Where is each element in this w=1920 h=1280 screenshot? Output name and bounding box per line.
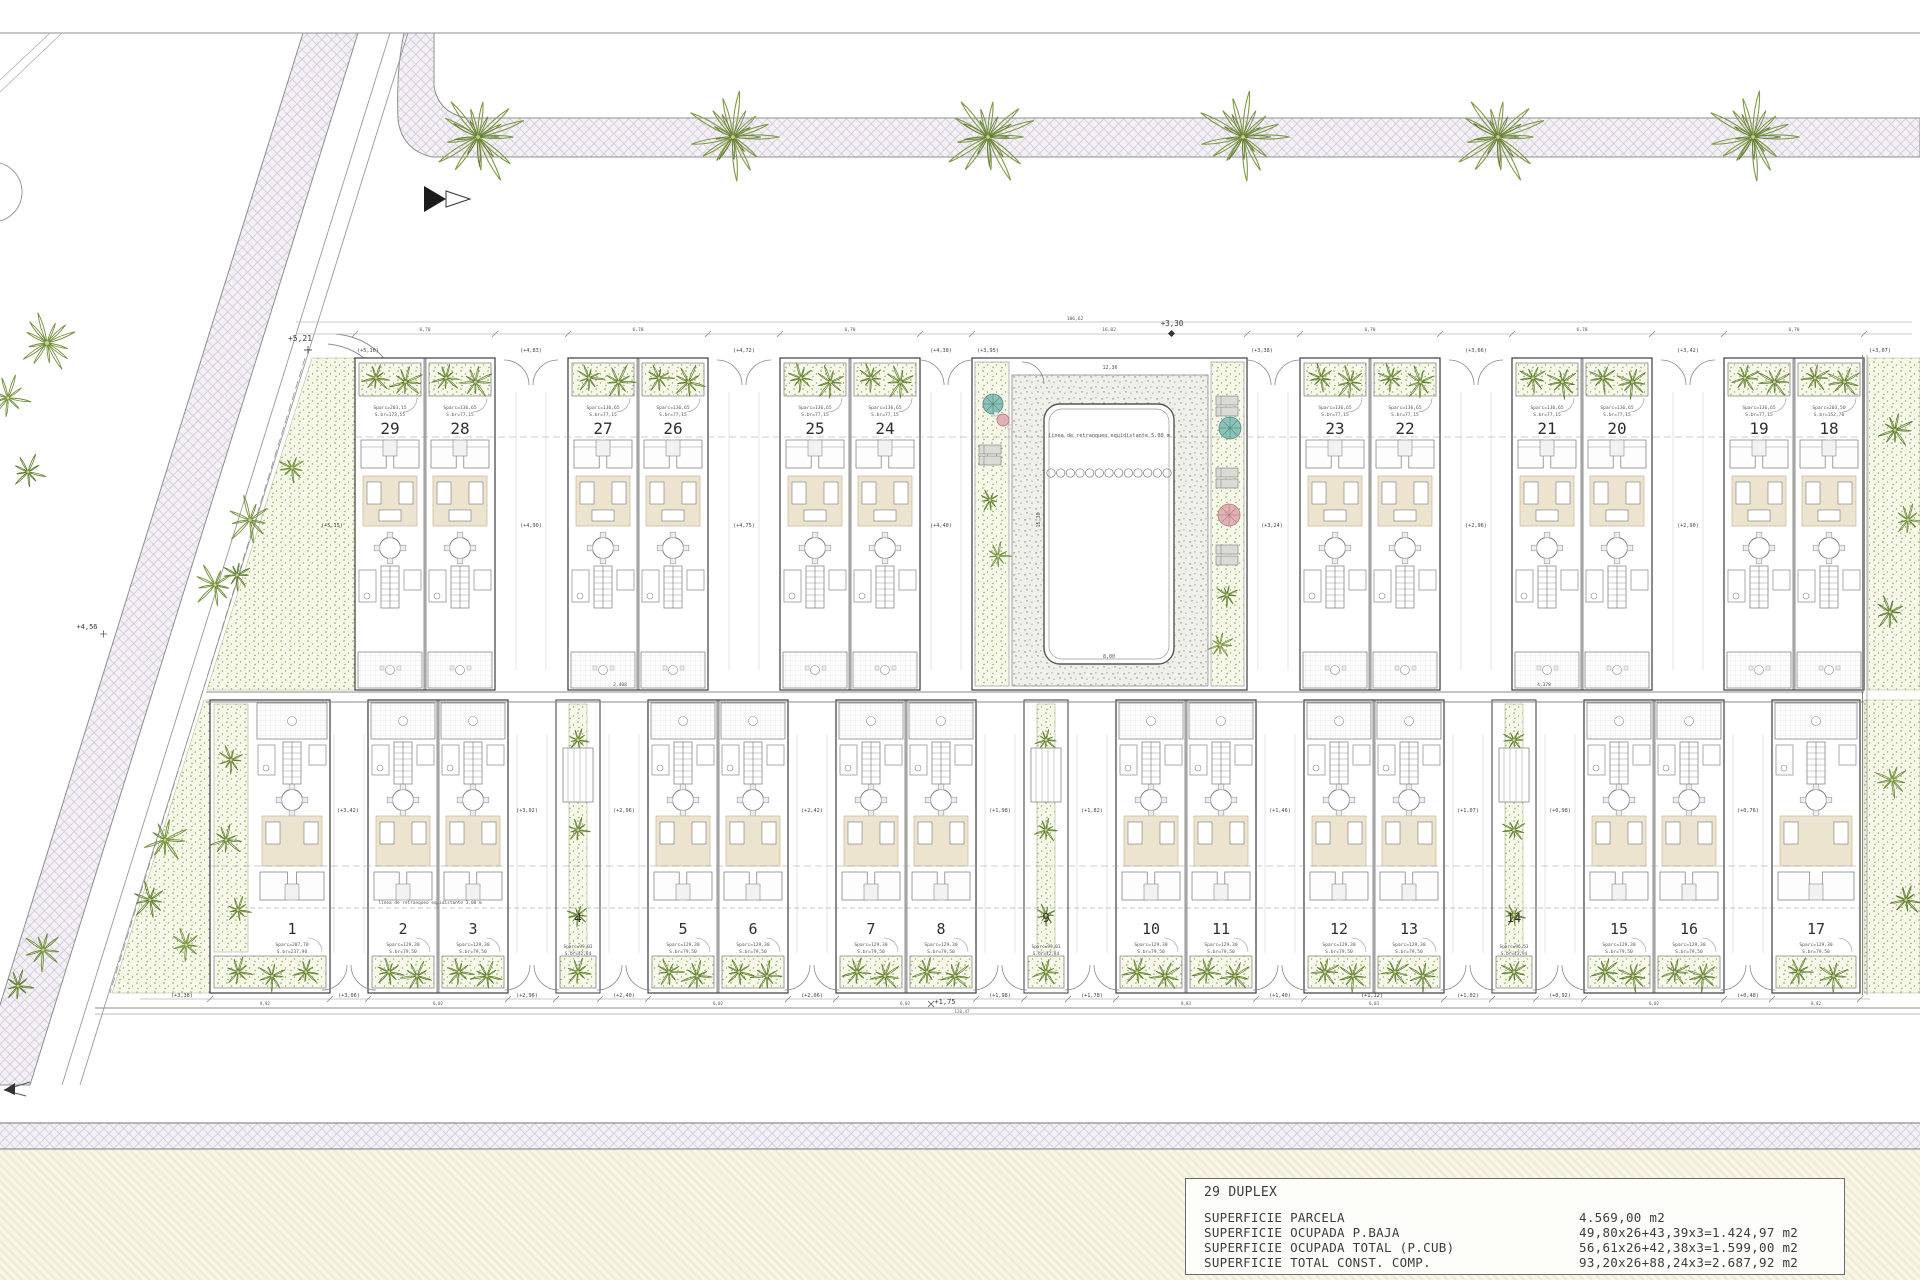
- dimension-text: 6,70: [1576, 327, 1587, 333]
- unit-plan-14: 14Sparc=96,53S.br=43,94: [1492, 700, 1536, 993]
- duplex-building: 12Sparc=129,30S.br=79,5013Sparc=129,30S.…: [1304, 700, 1444, 993]
- elevation-tag: (+1,82): [1081, 808, 1103, 814]
- unit-number: 13: [1400, 920, 1418, 938]
- unit-number: 14: [1507, 911, 1521, 925]
- unit-plan-4: 4Sparc=99,03S.br=42,84: [556, 700, 600, 993]
- unit-built-label: S.br=79,50: [1395, 949, 1423, 955]
- elevation-tag: (+1,40): [1269, 993, 1291, 999]
- dimension-text: 6,70: [419, 327, 430, 333]
- unit-built-label: S.br=79,50: [739, 949, 767, 955]
- duplex-building: 2Sparc=129,30S.br=79,503Sparc=129,30S.br…: [368, 700, 508, 993]
- level-marker: +5,21: [288, 334, 312, 343]
- pool-dimension: 8,00: [1103, 654, 1115, 660]
- dimension-text: 6,70: [1788, 327, 1799, 333]
- elevation-tag: (+4,83): [520, 348, 542, 354]
- dimension-text: 4,378: [1537, 682, 1551, 688]
- elevation-tag: (+1,46): [1269, 808, 1291, 814]
- duplex-building: 15Sparc=129,30S.br=79,5016Sparc=129,30S.…: [1584, 700, 1724, 993]
- unit-number: 18: [1819, 419, 1838, 438]
- unit-number: 8: [936, 920, 945, 938]
- unit-number: 22: [1395, 419, 1414, 438]
- duplex-building: 10Sparc=129,30S.br=79,5011Sparc=129,30S.…: [1116, 700, 1256, 993]
- unit-area-label: Sparc=129,30: [1392, 942, 1425, 948]
- elevation-tag: (+4,38): [930, 348, 952, 354]
- elevation-tag: (+1,12): [1361, 993, 1383, 999]
- elevation-tag: (+0,76): [1737, 808, 1759, 814]
- unit-number: 19: [1749, 419, 1768, 438]
- dimension-text: 6,70: [844, 327, 855, 333]
- unit-plan-1: 1Sparc=287,70S.br=237,90: [209, 700, 330, 993]
- row-label: SUPERFICIE OCUPADA TOTAL (P.CUB): [1204, 1240, 1579, 1255]
- parasol-icon: [983, 394, 1003, 414]
- pool-note: línea de retranqueo equidistante 5,00 m: [1048, 432, 1170, 439]
- unit-number: 20: [1607, 419, 1626, 438]
- unit-number: 12: [1330, 920, 1348, 938]
- unit-number: 5: [678, 920, 687, 938]
- unit-area-label: Sparc=99,03: [563, 944, 592, 950]
- unit-built-label: S.br=237,90: [277, 949, 308, 955]
- palm-tree-icon: [23, 313, 75, 370]
- palm-tree-icon: [0, 375, 31, 417]
- elevation-tag: (+3,38): [171, 993, 193, 999]
- unit-built-label: S.br=79,50: [1802, 949, 1830, 955]
- unit-number: 7: [866, 920, 875, 938]
- dimension-text: 8,82: [260, 1001, 271, 1006]
- unit-built-label: S.br=79,50: [1675, 949, 1703, 955]
- duplex-building: Sparc=136,65S.br=77,1519Sparc=203,50S.br…: [1724, 358, 1864, 690]
- duplex-building: Sparc=136,65S.br=77,1525Sparc=136,65S.br…: [780, 358, 920, 690]
- unit-area-label: Sparc=129,30: [1799, 942, 1832, 948]
- unit-area-label: Sparc=136,65: [656, 405, 689, 411]
- unit-built-label: S.br=79,50: [857, 949, 885, 955]
- unit-number: 10: [1142, 920, 1160, 938]
- elevation-tag: (+1,98): [989, 993, 1011, 999]
- unit-built-label: S.br=79,50: [1605, 949, 1633, 955]
- unit-built-label: S.br=77,15: [659, 412, 687, 418]
- elevation-tag: (+3,38): [1251, 348, 1273, 354]
- unit-built-label: S.br=77,15: [589, 412, 617, 418]
- row-value: 4.569,00 m2: [1579, 1210, 1665, 1225]
- unit-built-label: S.br=79,50: [389, 949, 417, 955]
- elevation-tag: (+0,48): [1737, 993, 1759, 999]
- elevation-tag: (+3,24): [1261, 523, 1283, 529]
- unit-area-label: Sparc=129,30: [666, 942, 699, 948]
- dimension-text: 106,62: [1067, 316, 1084, 322]
- dimension-text: 8,83: [1181, 1001, 1192, 1006]
- unit-built-label: S.br=79,50: [459, 949, 487, 955]
- unit-number: 6: [748, 920, 757, 938]
- parasol-icon: [1219, 417, 1241, 439]
- dimension-text: 6,02: [1649, 1001, 1660, 1006]
- duplex-building: Sparc=203,15S.br=173,5529Sparc=136,65S.b…: [355, 358, 495, 690]
- unit-built-label: S.br=77,15: [1391, 412, 1419, 418]
- unit-area-label: Sparc=129,30: [1204, 942, 1237, 948]
- unit-number: 27: [593, 419, 612, 438]
- unit-number: 21: [1537, 419, 1556, 438]
- unit-area-label: Sparc=96,53: [1499, 944, 1528, 950]
- level-marker: +1,75: [934, 998, 955, 1006]
- elevation-tag: (+1,78): [1081, 993, 1103, 999]
- unit-area-label: Sparc=136,65: [798, 405, 831, 411]
- unit-area-label: Sparc=129,30: [924, 942, 957, 948]
- unit-number: 3: [468, 920, 477, 938]
- elevation-tag: (+2,40): [613, 993, 635, 999]
- pool-dimension: 12,36: [1102, 365, 1117, 371]
- unit-area-label: Sparc=287,70: [275, 942, 308, 948]
- duplex-building: 7Sparc=129,30S.br=79,508Sparc=129,30S.br…: [836, 700, 976, 993]
- elevation-tag: (+2,90): [1677, 523, 1699, 529]
- unit-area-label: Sparc=136,65: [1388, 405, 1421, 411]
- unit-area-label: Sparc=136,65: [1600, 405, 1633, 411]
- dimension-text: 6,70: [1364, 327, 1375, 333]
- unit-number: 11: [1212, 920, 1230, 938]
- elevation-tag: (+5,10): [357, 348, 379, 354]
- setback-note: línea de retranqueo equidistante 3,00 m: [378, 899, 481, 906]
- level-marker: +3,30: [1161, 319, 1184, 328]
- elevation-tag: (+3,06): [338, 993, 360, 999]
- unit-area-label: Sparc=129,30: [386, 942, 419, 948]
- site-plan-drawing: línea de retranqueo equidistante 5,00 m1…: [0, 0, 1920, 1280]
- unit-area-label: Sparc=129,30: [1322, 942, 1355, 948]
- unit-number: 16: [1680, 920, 1698, 938]
- unit-plan-17: 17Sparc=129,30S.br=79,50: [1772, 700, 1860, 994]
- unit-area-label: Sparc=136,65: [443, 405, 476, 411]
- unit-area-label: Sparc=203,50: [1812, 405, 1845, 411]
- title-block-row: SUPERFICIE PARCELA 4.569,00 m2: [1204, 1210, 1844, 1225]
- elevation-tag: (+4,75): [733, 523, 755, 529]
- unit-area-label: Sparc=129,30: [1672, 942, 1705, 948]
- unit-area-label: Sparc=136,65: [1318, 405, 1351, 411]
- elevation-tag: (+3,42): [337, 808, 359, 814]
- pool-dimension: 15,30: [1036, 512, 1042, 527]
- elevation-tag: (+3,66): [1465, 348, 1487, 354]
- unit-number: 28: [450, 419, 469, 438]
- title-block-row: SUPERFICIE OCUPADA TOTAL (P.CUB) 56,61x2…: [1204, 1240, 1844, 1255]
- dimension-text: 6,03: [1369, 1001, 1380, 1006]
- unit-built-label: S.br=173,55: [375, 412, 406, 418]
- elevation-tag: (+2,06): [801, 993, 823, 999]
- dimension-text: 6,02: [900, 1001, 911, 1006]
- unit-built-label: S.br=79,50: [1325, 949, 1353, 955]
- duplex-building: 5Sparc=129,30S.br=79,506Sparc=129,30S.br…: [648, 700, 788, 993]
- unit-plan-9: 9Sparc=99,03S.br=42,84: [1024, 700, 1068, 993]
- unit-number: 15: [1610, 920, 1628, 938]
- elevation-tag: (+3,02): [516, 808, 538, 814]
- unit-area-label: Sparc=129,30: [1134, 942, 1167, 948]
- dimension-text: 6,70: [632, 327, 643, 333]
- elevation-tag: (+2,96): [516, 993, 538, 999]
- unit-number: 29: [380, 419, 399, 438]
- unit-built-label: S.br=77,15: [871, 412, 899, 418]
- unit-built-label: S.br=77,15: [801, 412, 829, 418]
- row-value: 93,20x26+88,24x3=2.687,92 m2: [1579, 1255, 1798, 1270]
- row-label: SUPERFICIE TOTAL CONST. COMP.: [1204, 1255, 1579, 1270]
- unit-number: 23: [1325, 419, 1344, 438]
- unit-number: 25: [805, 419, 824, 438]
- elevation-tag: (+4,72): [733, 348, 755, 354]
- unit-area-label: Sparc=129,30: [736, 942, 769, 948]
- palm-tree-icon: [15, 454, 46, 487]
- unit-area-label: Sparc=136,65: [586, 405, 619, 411]
- row-label: SUPERFICIE OCUPADA P.BAJA: [1204, 1225, 1579, 1240]
- elevation-tag: (+2,96): [1465, 523, 1487, 529]
- dimension-text: 6,02: [433, 1001, 444, 1006]
- duplex-building: Sparc=136,65S.br=77,1523Sparc=136,65S.br…: [1300, 358, 1440, 690]
- title-block: 29 DUPLEX SUPERFICIE PARCELA 4.569,00 m2…: [1185, 1178, 1845, 1275]
- site-plan-page: línea de retranqueo equidistante 5,00 m1…: [0, 0, 1920, 1280]
- unit-area-label: Sparc=99,03: [1031, 944, 1060, 950]
- unit-number: 1: [287, 920, 296, 938]
- unit-built-label: S.br=152,70: [1814, 412, 1845, 418]
- unit-built-label: S.br=77,15: [1603, 412, 1631, 418]
- palm-tree-icon: [197, 565, 231, 606]
- elevation-tag: (+5,15): [321, 523, 343, 529]
- elevation-tag: (+0,92): [1549, 993, 1571, 999]
- unit-built-label: S.br=77,15: [1745, 412, 1773, 418]
- unit-number: 2: [398, 920, 407, 938]
- elevation-tag: (+3,95): [977, 348, 999, 354]
- unit-built-label: S.br=77,15: [1321, 412, 1349, 418]
- elevation-tag: (+0,98): [1549, 808, 1571, 814]
- elevation-tag: (+1,02): [1457, 993, 1479, 999]
- unit-built-label: S.br=79,50: [669, 949, 697, 955]
- unit-area-label: Sparc=129,30: [1602, 942, 1635, 948]
- elevation-tag: (+4,90): [520, 523, 542, 529]
- elevation-tag: (+1,98): [989, 808, 1011, 814]
- unit-area-label: Sparc=203,15: [373, 405, 406, 411]
- elevation-tag: (+4,40): [930, 523, 952, 529]
- duplex-building: Sparc=136,65S.br=77,1521Sparc=136,65S.br…: [1512, 358, 1652, 690]
- level-marker: +4,56: [76, 623, 97, 631]
- pool-courtyard: línea de retranqueo equidistante 5,00 m1…: [972, 358, 1247, 690]
- elevation-tag: (+2,96): [613, 808, 635, 814]
- unit-area-label: Sparc=129,30: [456, 942, 489, 948]
- unit-number: 17: [1807, 920, 1825, 938]
- duplex-building: Sparc=136,65S.br=77,1527Sparc=136,65S.br…: [568, 358, 708, 690]
- unit-built-label: S.br=79,50: [1207, 949, 1235, 955]
- unit-area-label: Sparc=136,65: [1742, 405, 1775, 411]
- unit-number: 4: [574, 911, 581, 925]
- elevation-tag: (+3,42): [1677, 348, 1699, 354]
- dimension-text: 8,82: [1811, 1001, 1822, 1006]
- dimension-text: 16,82: [1102, 327, 1116, 333]
- unit-number: 26: [663, 419, 682, 438]
- row-label: SUPERFICIE PARCELA: [1204, 1210, 1579, 1225]
- elevation-tag: (+2,42): [801, 808, 823, 814]
- title-block-row: SUPERFICIE OCUPADA P.BAJA 49,80x26+43,39…: [1204, 1225, 1844, 1240]
- unit-number: 24: [875, 419, 894, 438]
- dimension-text: 2,408: [613, 682, 627, 688]
- dimension-text: 120,47: [954, 1009, 970, 1014]
- unit-built-label: S.br=77,15: [446, 412, 474, 418]
- project-title: 29 DUPLEX: [1204, 1185, 1844, 1200]
- unit-built-label: S.br=77,15: [1533, 412, 1561, 418]
- unit-number: 9: [1042, 911, 1049, 925]
- row-value: 49,80x26+43,39x3=1.424,97 m2: [1579, 1225, 1798, 1240]
- dimension-text: 6,02: [713, 1001, 724, 1006]
- unit-built-label: S.br=79,50: [927, 949, 955, 955]
- unit-area-label: Sparc=136,65: [1530, 405, 1563, 411]
- unit-built-label: S.br=79,50: [1137, 949, 1165, 955]
- elevation-tag: (+1,07): [1457, 808, 1479, 814]
- parasol-icon: [1218, 504, 1240, 526]
- unit-area-label: Sparc=136,65: [868, 405, 901, 411]
- title-block-row: SUPERFICIE TOTAL CONST. COMP. 93,20x26+8…: [1204, 1255, 1844, 1270]
- unit-area-label: Sparc=129,30: [854, 942, 887, 948]
- elevation-tag: (+3,07): [1869, 348, 1891, 354]
- row-value: 56,61x26+42,38x3=1.599,00 m2: [1579, 1240, 1798, 1255]
